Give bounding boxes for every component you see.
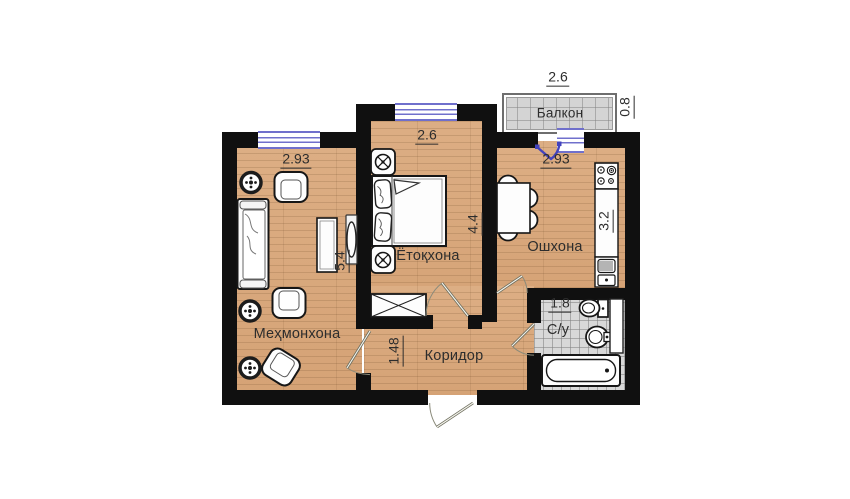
floor-plan: Меҳмонхона Ётоқхона Ошхона Коридор С/у Б… [0, 0, 850, 499]
side-table-bottom [240, 358, 260, 378]
kitchen-label: Ошхона [527, 239, 582, 255]
dim-bedroom-height: 4.4 [466, 212, 483, 235]
living-room-door [347, 331, 370, 375]
balcony-label: Балкон [537, 106, 583, 121]
bed [372, 176, 446, 246]
bedroom-label: Ётоқхона [396, 248, 459, 264]
armchair-middle [273, 288, 306, 318]
entry-door [430, 403, 473, 427]
washbasin [586, 327, 611, 348]
nightstand-bottom [371, 246, 395, 273]
dim-bathroom-width: 1.8 [548, 296, 571, 313]
bedroom-door [426, 283, 468, 316]
dim-corridor-width: 1.48 [387, 335, 404, 366]
armchair-top [275, 172, 308, 202]
nightstand-top [371, 149, 395, 175]
wardrobe [371, 294, 426, 317]
dining-table [497, 176, 538, 241]
dim-living-height: 5.4 [333, 249, 350, 272]
side-table-top [241, 173, 261, 193]
dim-kitchen-height: 3.2 [597, 209, 614, 232]
armchair-bottom [259, 346, 303, 389]
bathtub [542, 355, 620, 386]
living-room-label: Меҳмонхона [254, 326, 341, 342]
toilet [580, 300, 609, 318]
dim-balcony-depth: 0.8 [618, 95, 635, 118]
dim-balcony-width: 2.6 [546, 70, 569, 87]
corridor-label: Коридор [425, 348, 484, 364]
bathroom-door [512, 324, 534, 355]
side-table-middle [240, 301, 260, 321]
dim-kitchen-width: 2.93 [540, 152, 571, 169]
bathroom-label: С/у [547, 322, 569, 338]
dim-bedroom-width: 2.6 [415, 128, 438, 145]
stove [595, 163, 618, 189]
kitchen-door [497, 276, 527, 293]
sofa [238, 199, 269, 289]
bathroom-door-panel [610, 299, 623, 353]
dim-living-width: 2.93 [280, 152, 311, 169]
kitchen-sink [595, 257, 618, 287]
